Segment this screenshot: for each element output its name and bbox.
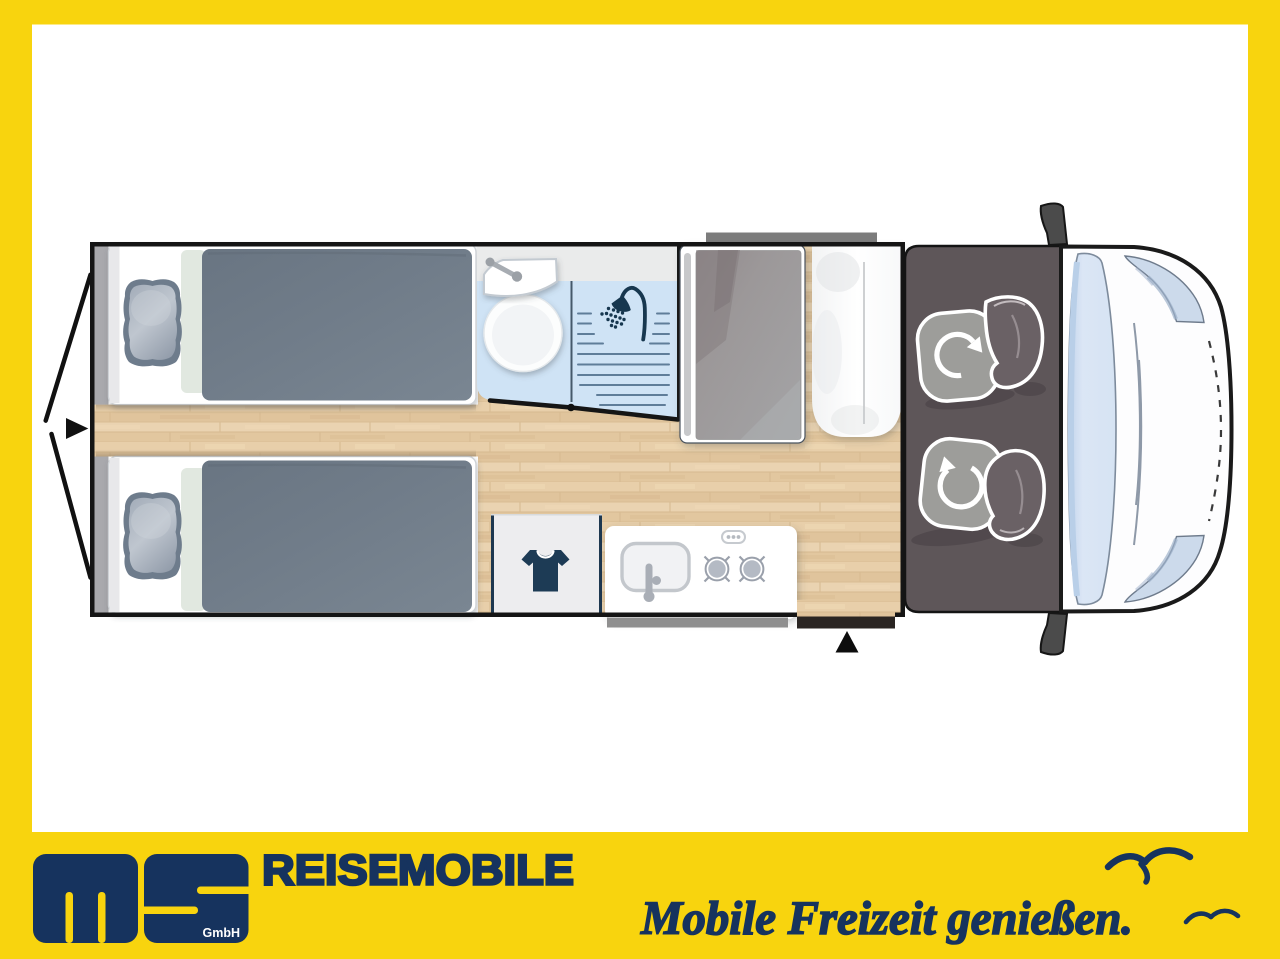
svg-text:Mobile Freizeit genießen.: Mobile Freizeit genießen. bbox=[640, 892, 1133, 945]
svg-text:GmbH: GmbH bbox=[203, 926, 241, 940]
svg-text:REISEMOBILE: REISEMOBILE bbox=[262, 848, 574, 895]
